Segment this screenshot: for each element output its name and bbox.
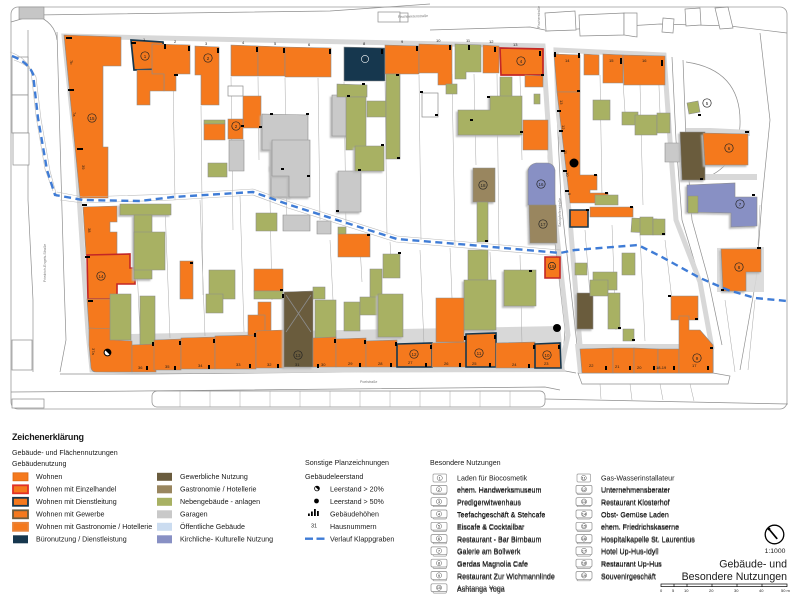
svg-text:Wohnen mit Gastronomie / Hotel: Wohnen mit Gastronomie / Hotellerie (36, 523, 152, 531)
svg-text:12: 12 (561, 125, 566, 130)
svg-text:18: 18 (480, 183, 486, 188)
svg-text:20: 20 (637, 365, 642, 370)
svg-text:Nebengebäude - anlagen: Nebengebäude - anlagen (180, 498, 260, 506)
svg-text:Gebäude- und Flächennutzungen: Gebäude- und Flächennutzungen (12, 449, 118, 457)
svg-text:15: 15 (89, 116, 95, 121)
svg-text:18-19: 18-19 (656, 365, 667, 370)
svg-text:Poelstraße: Poelstraße (360, 380, 377, 384)
svg-text:13: 13 (295, 353, 301, 358)
svg-text:Gerdas Magnolia Cafe: Gerdas Magnolia Cafe (457, 560, 528, 568)
svg-text:15: 15 (609, 58, 614, 63)
svg-text:Besondere Nutzungen: Besondere Nutzungen (430, 459, 501, 467)
svg-text:33: 33 (236, 362, 241, 367)
svg-text:17: 17 (582, 548, 587, 553)
svg-text:37a: 37a (91, 348, 96, 355)
svg-text:Hotel Up-Hus-Idyll: Hotel Up-Hus-Idyll (601, 548, 659, 556)
svg-text:Gastronomie / Hotellerie: Gastronomie / Hotellerie (180, 486, 257, 494)
svg-text:Garagen: Garagen (180, 511, 208, 519)
svg-text:Restaurant Zur Wichmannlinde: Restaurant Zur Wichmannlinde (457, 572, 555, 580)
svg-text:Laden für Biocosmetik: Laden für Biocosmetik (457, 475, 528, 483)
svg-text:Restaurant Klosterhof: Restaurant Klosterhof (601, 499, 670, 507)
svg-text:15: 15 (582, 524, 587, 529)
svg-text:35: 35 (165, 364, 170, 369)
svg-text:ehem. Friedrichskaserne: ehem. Friedrichskaserne (601, 523, 679, 531)
svg-text:Eiscafe & Cocktailbar: Eiscafe & Cocktailbar (457, 523, 525, 531)
svg-text:10: 10 (436, 38, 441, 43)
svg-text:Predigerwitwenhaus: Predigerwitwenhaus (457, 499, 521, 507)
svg-text:Verlauf Klappgraben: Verlauf Klappgraben (330, 536, 394, 544)
svg-text:10: 10 (684, 588, 689, 593)
svg-text:Gebäudeleerstand: Gebäudeleerstand (305, 473, 363, 481)
svg-text:Gewerbliche Nutzung: Gewerbliche Nutzung (180, 473, 248, 481)
svg-text:25: 25 (472, 361, 477, 366)
svg-text:7b: 7b (69, 60, 74, 65)
svg-text:31: 31 (295, 362, 300, 367)
svg-text:22: 22 (589, 363, 594, 368)
svg-text:Unternehmensberater: Unternehmensberater (601, 486, 671, 494)
svg-text:16: 16 (582, 536, 587, 541)
svg-text:17: 17 (540, 222, 546, 227)
svg-text:19: 19 (549, 264, 555, 269)
svg-text:Obst- Gemüse Laden: Obst- Gemüse Laden (601, 511, 669, 519)
svg-text:16: 16 (642, 58, 647, 63)
svg-text:29: 29 (348, 361, 353, 366)
svg-text:Gas-Wasserinstallateur: Gas-Wasserinstallateur (601, 475, 675, 483)
svg-text:Gebäude- und: Gebäude- und (719, 559, 787, 571)
svg-text:Sackpfeifenstraße: Sackpfeifenstraße (558, 198, 562, 227)
svg-text:13: 13 (513, 42, 518, 47)
svg-text:Kirchliche- Kulturelle Nutzung: Kirchliche- Kulturelle Nutzung (180, 536, 273, 544)
svg-text:10: 10 (544, 353, 550, 358)
svg-text:Souvenirgeschäft: Souvenirgeschäft (601, 572, 656, 580)
svg-text:27: 27 (408, 360, 413, 365)
svg-text:19: 19 (582, 573, 587, 578)
svg-text:Wohnen mit Gewerbe: Wohnen mit Gewerbe (36, 511, 105, 519)
svg-text:40: 40 (759, 588, 764, 593)
svg-text:Teefachgeschäft & Stehcafe: Teefachgeschäft & Stehcafe (457, 511, 545, 519)
svg-text:38: 38 (87, 228, 92, 233)
svg-text:Hospitalkapelle St. Laurentius: Hospitalkapelle St. Laurentius (601, 535, 695, 543)
svg-text:Büronutzung / Dienstleistung: Büronutzung / Dienstleistung (36, 536, 127, 544)
svg-text:5: 5 (672, 588, 675, 593)
svg-text:24: 24 (512, 362, 517, 367)
svg-text:Besondere Nutzungen: Besondere Nutzungen (682, 571, 788, 583)
svg-text:28: 28 (378, 361, 383, 366)
svg-text:Restaurant - Bar Birnbaum: Restaurant - Bar Birnbaum (457, 535, 541, 543)
svg-text:Ashtanga Yoga: Ashtanga Yoga (457, 585, 505, 593)
svg-text:17: 17 (692, 363, 697, 368)
svg-text:7a: 7a (72, 112, 77, 117)
svg-text:18: 18 (582, 561, 587, 566)
svg-text:39: 39 (81, 165, 86, 170)
svg-text:10: 10 (437, 585, 442, 590)
svg-text:32: 32 (267, 362, 272, 367)
svg-text:16: 16 (538, 182, 544, 187)
svg-text:30: 30 (734, 588, 739, 593)
svg-text:14: 14 (565, 58, 570, 63)
svg-text:10: 10 (565, 172, 570, 177)
svg-text:1:1000: 1:1000 (765, 548, 786, 555)
svg-text:12: 12 (489, 39, 494, 44)
svg-text:Gebäudehöhen: Gebäudehöhen (330, 511, 379, 519)
svg-text:Zeichenerklärung: Zeichenerklärung (12, 432, 84, 442)
svg-text:Galerie am Bollwerk: Galerie am Bollwerk (457, 548, 521, 556)
svg-text:14: 14 (582, 511, 587, 516)
svg-text:11: 11 (477, 351, 482, 356)
svg-text:21: 21 (615, 364, 620, 369)
svg-text:Wohnen: Wohnen (36, 473, 62, 481)
svg-text:12: 12 (411, 352, 417, 357)
svg-text:14: 14 (98, 274, 104, 279)
svg-text:Hausnummern: Hausnummern (330, 523, 377, 531)
svg-text:Wohnen mit Einzelhandel: Wohnen mit Einzelhandel (36, 486, 117, 494)
svg-text:ehem. Handwerksmuseum: ehem. Handwerksmuseum (457, 486, 541, 494)
svg-text:Leerstand > 20%: Leerstand > 20% (330, 486, 385, 494)
svg-text:Gebäudenutzung: Gebäudenutzung (12, 460, 66, 468)
svg-text:26: 26 (444, 361, 449, 366)
svg-text:13: 13 (582, 499, 587, 504)
svg-text:23: 23 (544, 361, 549, 366)
svg-text:30: 30 (321, 362, 326, 367)
svg-text:13: 13 (559, 100, 564, 105)
svg-text:31: 31 (311, 524, 317, 530)
svg-text:Restaurant Up-Hus: Restaurant Up-Hus (601, 560, 662, 568)
svg-text:Leerstand > 50%: Leerstand > 50% (330, 498, 385, 506)
svg-text:36: 36 (138, 365, 143, 370)
svg-text:Wohnen mit Dienstleitung: Wohnen mit Dienstleitung (36, 498, 117, 506)
svg-text:20: 20 (709, 588, 714, 593)
svg-text:Friedrich-Engels-Straße: Friedrich-Engels-Straße (43, 244, 47, 282)
svg-text:Fischerstraße: Fischerstraße (537, 6, 541, 28)
svg-text:12: 12 (582, 487, 587, 492)
svg-text:34: 34 (198, 363, 203, 368)
svg-text:Sonstige Planzeichnungen: Sonstige Planzeichnungen (305, 459, 389, 467)
svg-text:Öffentliche Gebäude: Öffentliche Gebäude (180, 523, 245, 531)
svg-text:50 m: 50 m (781, 588, 791, 593)
svg-text:0: 0 (660, 588, 663, 593)
